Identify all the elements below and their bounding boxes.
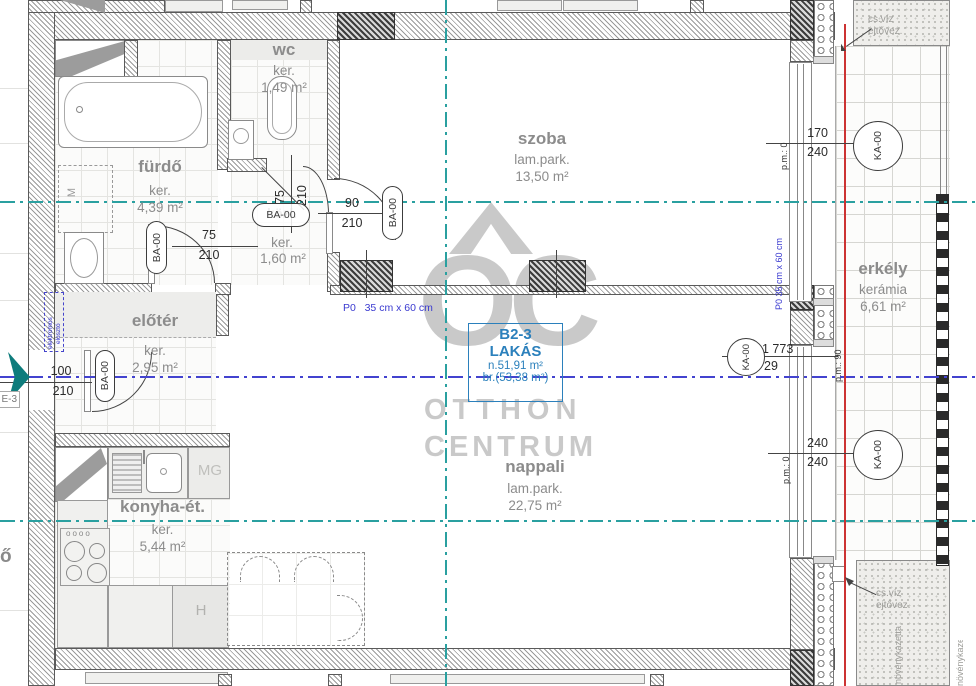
unit-net-area: n.51,91 m²	[469, 360, 562, 372]
bathtub-tap	[76, 106, 83, 113]
door-tag-text: BA-00	[151, 233, 163, 262]
kozl-area: 1,60 m²	[248, 252, 318, 267]
window-bottom-height: 240	[798, 456, 828, 469]
floor-plan: OC OTTHON CENTRUM	[0, 0, 976, 686]
furdo-floor-type: ker.	[110, 184, 210, 199]
kitchen-basin-drain	[160, 468, 167, 475]
shaft-wedge	[56, 448, 107, 501]
facade-block-top	[790, 40, 814, 62]
door-tag-text: BA-00	[387, 198, 399, 227]
dishwasher-label: MG	[192, 462, 228, 479]
margin-gridline	[0, 88, 28, 89]
entry-tag-text: E-3	[1, 394, 17, 405]
window-top-height: 240	[798, 146, 828, 159]
shaft-furdo-hatch	[124, 40, 138, 77]
furdo-door-tag: BA-00	[146, 221, 167, 274]
entry-door-tag: BA-00	[95, 350, 115, 402]
boundary-line-red	[844, 24, 846, 686]
wc-door-height: 210	[296, 162, 309, 206]
dim-line	[318, 213, 392, 214]
szoba-door-height: 210	[334, 217, 370, 230]
wall-konyha-top	[55, 433, 230, 447]
balcony-railing	[936, 194, 949, 566]
erkely-name: erkély	[848, 260, 918, 279]
fridge-label: H	[186, 602, 216, 619]
balcony-edge	[940, 46, 941, 194]
stove-knobs: oooo	[66, 529, 92, 538]
szoba-door-leaf	[326, 212, 333, 254]
stove-burner	[89, 543, 105, 559]
window-top-glass	[803, 64, 804, 300]
kozl-door-tag: BA-00	[252, 203, 310, 227]
furdo-basin-bowl	[70, 238, 98, 278]
konyha-area: 5,44 m²	[105, 540, 220, 555]
kozl-floor-type: ker.	[250, 236, 314, 251]
eloter-area: 2,95 m²	[105, 361, 205, 376]
stove-burner	[64, 541, 85, 562]
pm0-note-bottom: p.m.: 0	[781, 436, 791, 484]
entry-door-leaf	[84, 350, 91, 412]
neighbour-wall-stub	[300, 0, 312, 13]
entry-opening	[29, 350, 54, 410]
elektromos-label: elektromos	[47, 295, 54, 349]
washer-area	[58, 165, 113, 233]
kitchen-counter-bottom	[108, 585, 174, 648]
stove-burner	[87, 563, 107, 583]
section-line-teal	[0, 520, 976, 522]
margin-gridline	[0, 300, 28, 301]
wc-door-width: 75	[274, 166, 287, 204]
shaft-konyha	[55, 447, 108, 502]
window-top	[789, 62, 812, 302]
dim-line	[172, 246, 258, 247]
wall-wc-kozl	[227, 158, 267, 172]
facade-insulation-mid	[814, 285, 834, 345]
door-tag-text: BA-00	[266, 209, 295, 221]
margin-gridline	[0, 253, 28, 254]
window-top-glass	[797, 64, 798, 300]
balcony-edge	[946, 46, 947, 194]
window-top-width: 170	[798, 127, 828, 140]
pillar-axis-tick	[366, 250, 367, 298]
wc-floor-type: ker.	[254, 64, 314, 79]
nappali-area: 22,75 m²	[485, 499, 585, 514]
szoba-door-width: 90	[334, 197, 370, 210]
neighbour-wall-stub	[650, 674, 664, 686]
unit-box: B2-3 LAKÁS n.51,91 m² br.(53,38 m²)	[468, 323, 563, 402]
neighbour-wall-stub	[690, 0, 704, 13]
szoba-door-tag: BA-00	[382, 186, 403, 240]
window-cap	[813, 56, 834, 64]
facade-block-bottom-dark	[790, 650, 814, 686]
window-cap	[813, 298, 834, 306]
window-tag-text: KA-00	[741, 344, 752, 370]
facade-insulation-top	[814, 0, 834, 63]
wall-eloter-stub	[216, 290, 229, 336]
kitchen-drainer	[112, 453, 142, 493]
window-tag-text: KA-00	[872, 440, 884, 469]
unit-code: B2-3	[469, 326, 562, 343]
neighbour-fixture-below	[390, 674, 645, 684]
window-mid-tag: KA-00	[727, 338, 765, 376]
csviz-line1: cs.víz	[868, 14, 902, 26]
window-cap	[813, 556, 834, 564]
entry-door-height: 210	[46, 385, 80, 398]
facade-insulation-bottom	[814, 558, 834, 686]
stove-burner	[66, 565, 82, 581]
csviz-note-top: cs.víz ejtővez.	[868, 14, 902, 37]
elektromos-label2: elosztó	[55, 300, 62, 344]
neighbour-fixture	[232, 0, 288, 10]
facade-block-top-dark	[790, 0, 814, 40]
szoba-floor-type: lam.park.	[492, 153, 592, 168]
szoba-area: 13,50 m²	[492, 170, 592, 185]
konyha-name: konyha-ét.	[105, 498, 220, 517]
entry-tag: E-3	[0, 391, 20, 408]
wc-area: 1,49 m²	[254, 81, 314, 96]
kitchen-faucet	[143, 450, 145, 464]
wall-top	[28, 12, 835, 40]
pillar-szoba-2	[529, 260, 586, 292]
wall-kozl-szoba-top	[327, 40, 340, 180]
pm90-note: p.m.: 90	[833, 334, 843, 382]
plantbox-label: növénykazetta	[893, 594, 903, 684]
plantbox-label-clipped: növénykazetta	[955, 640, 965, 686]
furdo-name: fürdő	[110, 158, 210, 177]
neighbour-fixture	[165, 0, 223, 12]
window-bottom-tag: KA-00	[853, 430, 903, 480]
erkely-floor-type: kerámia	[848, 283, 918, 298]
furdo-area: 4,39 m²	[110, 201, 210, 216]
window-mid-width: 1 773	[762, 343, 802, 356]
window-cap	[813, 339, 834, 347]
window-bottom-width: 240	[798, 437, 828, 450]
window-mid-height: 29	[764, 360, 790, 373]
door-tag-text: BA-00	[99, 361, 111, 390]
p0-note-vertical: P0 35 cm x 60 cm	[774, 226, 784, 310]
facade-block-mid	[790, 310, 814, 345]
window-bottom-glass	[803, 347, 804, 556]
pillar-top	[337, 12, 395, 40]
furdo-door-height: 210	[192, 249, 226, 262]
erkely-area: 6,61 m²	[848, 300, 918, 315]
bathtub-inner	[64, 82, 202, 142]
entry-door-width: 100	[44, 365, 78, 378]
csviz-line2: ejtővez.	[868, 26, 902, 38]
margin-gridline	[0, 143, 28, 144]
p0-note: P0 35 cm x 60 cm	[343, 302, 433, 314]
wall-furdo-bottom-b	[215, 283, 231, 295]
washer-label: M	[66, 188, 78, 197]
eloter-floor-type: ker.	[105, 344, 205, 359]
margin-gridline	[0, 610, 28, 611]
unit-gross-area: br.(53,38 m²)	[469, 372, 562, 384]
neighbour-wall-stub	[218, 674, 232, 686]
window-bottom-glass	[797, 347, 798, 556]
nappali-floor-type: lam.park.	[485, 482, 585, 497]
clipped-room-letter: ő	[0, 546, 12, 568]
window-tag-text: KA-00	[872, 131, 884, 160]
facade-block-bottom	[790, 558, 814, 650]
wc-name: wc	[254, 41, 314, 60]
furdo-door-width: 75	[192, 229, 226, 242]
wc-sink-bowl	[233, 128, 249, 144]
neighbour-wall-stub	[328, 674, 342, 686]
eloter-name: előtér	[105, 312, 205, 331]
neighbour-fixture	[497, 0, 562, 11]
szoba-name: szoba	[492, 130, 592, 149]
unit-word: LAKÁS	[469, 343, 562, 360]
window-top-tag: KA-00	[853, 121, 903, 171]
pillar-axis-tick	[556, 250, 557, 298]
pm0-note-top: p.m.: 0	[779, 126, 789, 170]
margin-gridline	[0, 432, 28, 433]
neighbour-fixture-below	[85, 672, 228, 684]
nappali-name: nappali	[485, 458, 585, 477]
konyha-floor-type: ker.	[105, 523, 220, 538]
section-line-teal-vertical	[445, 0, 447, 686]
neighbour-fixture	[563, 0, 638, 11]
